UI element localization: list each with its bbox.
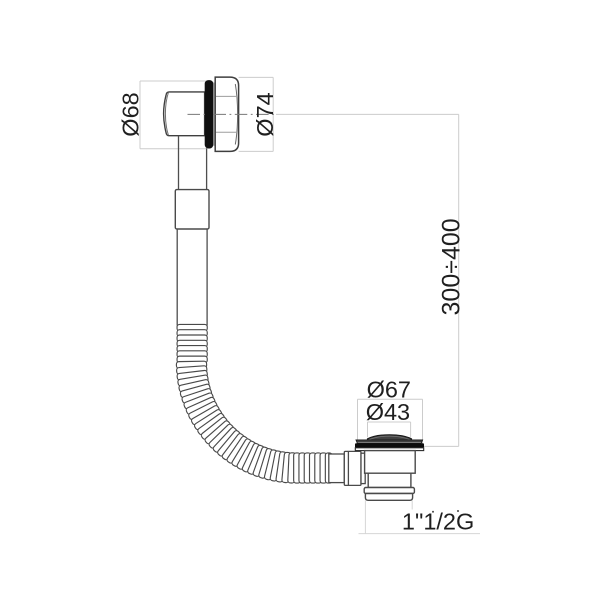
- svg-text:Ø74: Ø74: [252, 92, 278, 136]
- svg-text:1"1/2G: 1"1/2G: [402, 509, 474, 535]
- svg-text:300÷400: 300÷400: [438, 218, 466, 315]
- svg-text:Ø43: Ø43: [366, 399, 410, 425]
- svg-text:Ø68: Ø68: [118, 92, 144, 136]
